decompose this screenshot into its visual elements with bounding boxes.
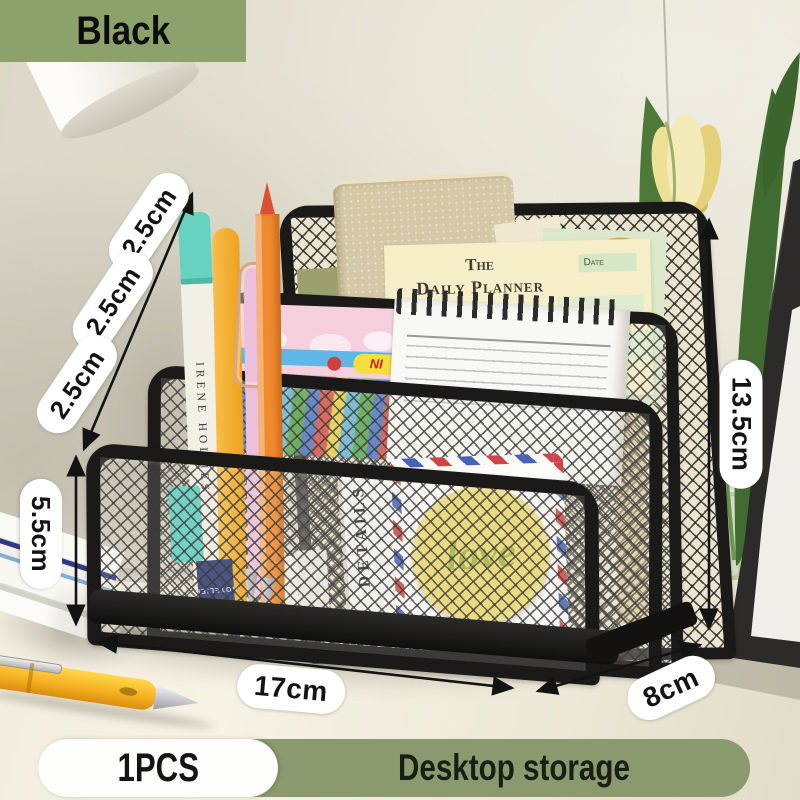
front-height-label: 5.5cm [20, 479, 62, 589]
color-variant-badge: Black [0, 0, 246, 62]
product-photo-black-desktop-organizer: The Daily Planner Date NI IRENE HOLMES [0, 0, 800, 800]
product-title-text: Desktop storage [398, 747, 630, 789]
product-title: Desktop storage [278, 739, 750, 797]
quantity-text: 1PCS [117, 746, 199, 791]
variant-label: Black [76, 9, 170, 54]
quantity-pill: 1PCS [38, 739, 278, 797]
back-height-label: 13.5cm [720, 360, 763, 489]
